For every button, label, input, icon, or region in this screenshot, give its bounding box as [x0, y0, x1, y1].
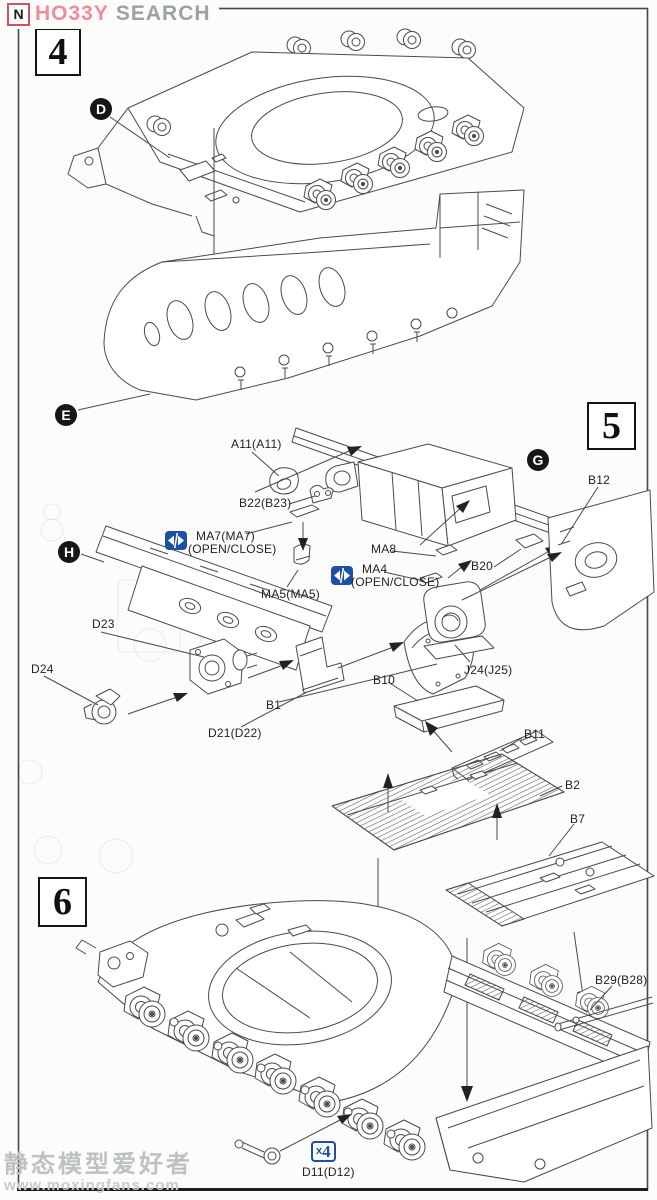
part-label-b12: B12 — [588, 473, 610, 487]
step-number-6: 6 — [38, 877, 87, 927]
watermark-chinese-text: 静态模型爱好者 — [4, 1152, 193, 1178]
hobbysearch-logo-icon: N — [7, 3, 30, 26]
part-label-b1: B1 — [266, 698, 281, 712]
part-label-b29: B29(B28) — [595, 973, 647, 987]
part-label-b20: B20 — [471, 559, 493, 573]
marker-g: G — [527, 449, 549, 471]
step-number-4: 4 — [35, 28, 81, 76]
part-label-b22: B22(B23) — [239, 496, 291, 510]
part-label-ma7: MA7(MA7) — [196, 529, 255, 543]
quantity-badge: x 4 — [311, 1141, 336, 1162]
part-label-d24: D24 — [31, 662, 54, 676]
marker-d: D — [90, 98, 112, 120]
logo-text-search: SEARCH — [116, 2, 211, 26]
hobbysearch-watermark: N HO33Y SEARCH — [5, 2, 219, 29]
part-label-ma4: MA4 — [362, 562, 387, 576]
open-close-icon — [165, 531, 187, 550]
step6-drawing — [76, 901, 653, 1182]
part-label-b10: B10 — [373, 673, 395, 687]
open-close-icon — [331, 566, 353, 585]
marker-e: E — [55, 404, 77, 426]
marker-h: H — [58, 541, 80, 563]
moxingfans-watermark: 静态模型爱好者 www.moxingfans.com — [4, 1152, 193, 1195]
part-label-d23: D23 — [92, 617, 115, 631]
part-label-ma4-note: (OPEN/CLOSE) — [351, 575, 439, 589]
part-label-d11: D11(D12) — [302, 1165, 355, 1179]
part-label-b11: B11 — [524, 727, 545, 741]
part-label-b7: B7 — [570, 812, 585, 826]
step4-drawing — [68, 29, 524, 410]
part-label-b2: B2 — [565, 778, 580, 792]
logo-text-hobby: HO33Y — [35, 2, 109, 26]
part-label-ma8: MA8 — [371, 542, 396, 556]
part-label-ma7-note: (OPEN/CLOSE) — [188, 542, 276, 556]
instruction-sheet-page: N HO33Y SEARCH 4 5 6 D E G H A11(A11) B2… — [0, 0, 657, 1200]
diagram-line-art — [0, 0, 657, 1200]
part-label-d21: D21(D22) — [208, 726, 262, 740]
step-number-5: 5 — [587, 402, 636, 450]
quantity-value: 4 — [322, 1143, 331, 1160]
part-label-a11: A11(A11) — [231, 437, 282, 451]
part-label-j24: J24(J25) — [464, 663, 512, 677]
part-label-ma5: MA5(MA5) — [261, 587, 320, 601]
watermark-url-text: www.moxingfans.com — [4, 1178, 193, 1195]
